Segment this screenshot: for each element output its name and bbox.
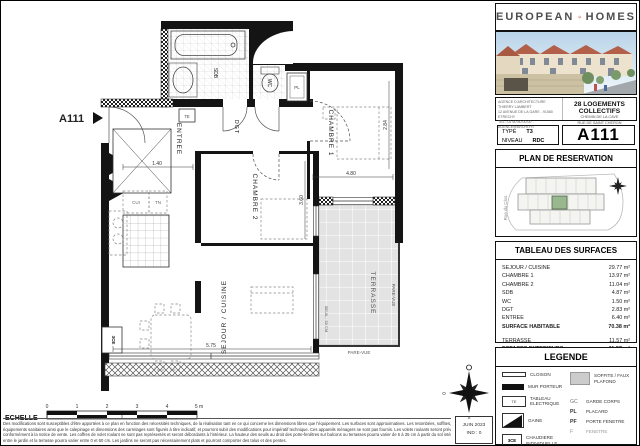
street-name-label: Rue du Clos xyxy=(503,195,508,221)
site-key-plan: Rue du Clos xyxy=(496,168,636,236)
unit-type-value: T3 xyxy=(526,129,532,135)
svg-text:DGT: DGT xyxy=(233,120,239,135)
svg-text:WC: WC xyxy=(266,79,272,88)
svg-text:SEJOUR / CUISINE: SEJOUR / CUISINE xyxy=(221,280,228,354)
svg-text:1.40: 1.40 xyxy=(152,161,162,167)
key-plan-north-icon xyxy=(609,177,627,195)
svg-text:4: 4 xyxy=(166,404,169,410)
legend-item-tableau-electrique: TE TABLEAU ELECTRIQUE xyxy=(502,396,570,407)
floor-fills xyxy=(168,29,399,345)
unit-ref-box: A111 xyxy=(562,125,635,145)
legend-title: LEGENDE xyxy=(496,348,636,367)
svg-text:5.75: 5.75 xyxy=(206,343,216,349)
project-title: 28 LOGEMENTS COLLECTIFS xyxy=(563,101,636,115)
brand-name-left: EUROPEAN xyxy=(496,11,574,23)
svg-text:5 m: 5 m xyxy=(195,404,203,410)
reservation-plan-box: PLAN DE RESERVATION Rue du Clos xyxy=(495,149,637,237)
table-row: TERRASSE11.57 m² xyxy=(502,337,630,345)
chaudiere-symbol-icon: 3CE xyxy=(502,434,522,446)
svg-text:0: 0 xyxy=(46,404,49,410)
svg-text:SEUIL : 50 CM: SEUIL : 50 CM xyxy=(324,306,329,333)
legend-item-mur-porteur: MUR PORTEUR xyxy=(502,384,570,390)
svg-text:2.84: 2.84 xyxy=(383,120,389,130)
logo-box: EUROPEAN HOMES xyxy=(495,3,637,31)
building-rendering xyxy=(495,31,637,95)
surfaces-table-box: TABLEAU DES SURFACES SEJOUR / CUISINE29.… xyxy=(495,241,637,343)
svg-text:CHAMBRE 1: CHAMBRE 1 xyxy=(327,110,334,157)
svg-text:3CE: 3CE xyxy=(111,336,116,345)
agency-address: AGENCE D'ARCHITECTURE THIERRY LAMBERT 12… xyxy=(496,98,563,120)
legend-item-chaudiere: 3CE CHAUDIERE INDIVIDUELLE xyxy=(502,434,570,446)
svg-text:2: 2 xyxy=(106,404,109,410)
svg-text:4.80: 4.80 xyxy=(346,171,356,177)
svg-text:SDB: SDB xyxy=(212,68,218,79)
legend-item-fenetre: F FENETRE xyxy=(570,429,634,435)
disclaimer-text: Des modifications sont susceptibles d'êt… xyxy=(3,418,451,443)
svg-text:ENTREE: ENTREE xyxy=(175,123,182,155)
legend-box: LEGENDE CLOISON MUR PORTEUR TE TABLEAU E… xyxy=(495,347,637,445)
legend-item-garde-corps: GC GARDE CORPS xyxy=(570,399,634,405)
svg-text:3: 3 xyxy=(136,404,139,410)
svg-text:CHAMBRE 2: CHAMBRE 2 xyxy=(251,174,258,221)
legend-item-soffite: SOFFITE / FAUX PLAFOND xyxy=(570,372,634,385)
surfaces-table: SEJOUR / CUISINE29.77 m² CHAMBRE 113.97 … xyxy=(496,260,636,354)
surfaces-title: TABLEAU DES SURFACES xyxy=(496,242,636,260)
plan-sheet: A111 ENTREE DGT SDB WC CHAMBRE 1 CHAMBRE… xyxy=(0,0,640,446)
revision-index: IND : 0 xyxy=(467,430,482,438)
svg-text:TN: TN xyxy=(155,200,161,205)
table-row-total: SURFACE HABITABLE70.38 m² xyxy=(502,323,630,331)
unit-type-strip: TYPET3 NIVEAURDC A111 xyxy=(495,123,637,147)
svg-text:TE: TE xyxy=(184,114,190,119)
reservation-title: PLAN DE RESERVATION xyxy=(496,150,636,168)
cloison-symbol-icon xyxy=(502,372,526,377)
legend-item-cloison: CLOISON xyxy=(502,372,570,378)
project-info-strip: AGENCE D'ARCHITECTURE THIERRY LAMBERT 12… xyxy=(495,97,637,121)
unit-ref-label: A111 xyxy=(59,113,84,125)
unit-type-box: TYPET3 NIVEAURDC xyxy=(497,125,559,145)
svg-text:PARE-VUE: PARE-VUE xyxy=(391,284,396,307)
rendering-illustration xyxy=(496,32,636,94)
legend-item-placard: PL PLACARD xyxy=(570,409,634,415)
revision-date: JUIN 2023 xyxy=(463,422,486,430)
gaine-symbol-icon xyxy=(502,413,524,428)
mur-porteur-symbol-icon xyxy=(502,384,524,390)
unit-ref-arrow-icon xyxy=(93,112,103,124)
table-row: SDB4.87 m² xyxy=(502,289,630,297)
legend-item-porte-fenetre: PF PORTE FENETRE xyxy=(570,419,634,425)
north-compass-icon: O E S xyxy=(442,365,491,420)
svg-text:3.60: 3.60 xyxy=(299,195,305,205)
table-row: SEJOUR / CUISINE29.77 m² xyxy=(502,264,630,272)
floor-plan-drawing: A111 ENTREE DGT SDB WC CHAMBRE 1 CHAMBRE… xyxy=(1,1,491,446)
table-row: CHAMBRE 211.04 m² xyxy=(502,281,630,289)
highlighted-unit xyxy=(552,196,567,209)
brand-name-right: HOMES xyxy=(586,11,636,23)
svg-text:CUI: CUI xyxy=(132,200,140,205)
unit-level-value: RDC xyxy=(532,138,544,144)
scale-ticks: 0 1 2 3 4 5 m xyxy=(46,404,204,410)
svg-text:PARE-VUE: PARE-VUE xyxy=(348,350,371,355)
legend-item-gaine: GAINE xyxy=(502,413,570,428)
revision-date-box: JUIN 2023 IND : 0 xyxy=(455,416,493,444)
svg-text:TERRASSE: TERRASSE xyxy=(369,271,376,314)
table-row: ENTREE6.40 m² xyxy=(502,314,630,322)
soffite-symbol-icon xyxy=(570,372,590,385)
tableau-electrique-symbol-icon: TE xyxy=(502,396,526,407)
house-logo-icon xyxy=(578,8,581,26)
hedge-band xyxy=(105,363,319,376)
table-row: DGT2.83 m² xyxy=(502,306,630,314)
table-row: CHAMBRE 113.97 m² xyxy=(502,272,630,280)
svg-text:O: O xyxy=(442,391,446,396)
svg-text:PL: PL xyxy=(294,85,300,90)
table-row: WC1.50 m² xyxy=(502,298,630,306)
svg-text:1: 1 xyxy=(76,404,79,410)
